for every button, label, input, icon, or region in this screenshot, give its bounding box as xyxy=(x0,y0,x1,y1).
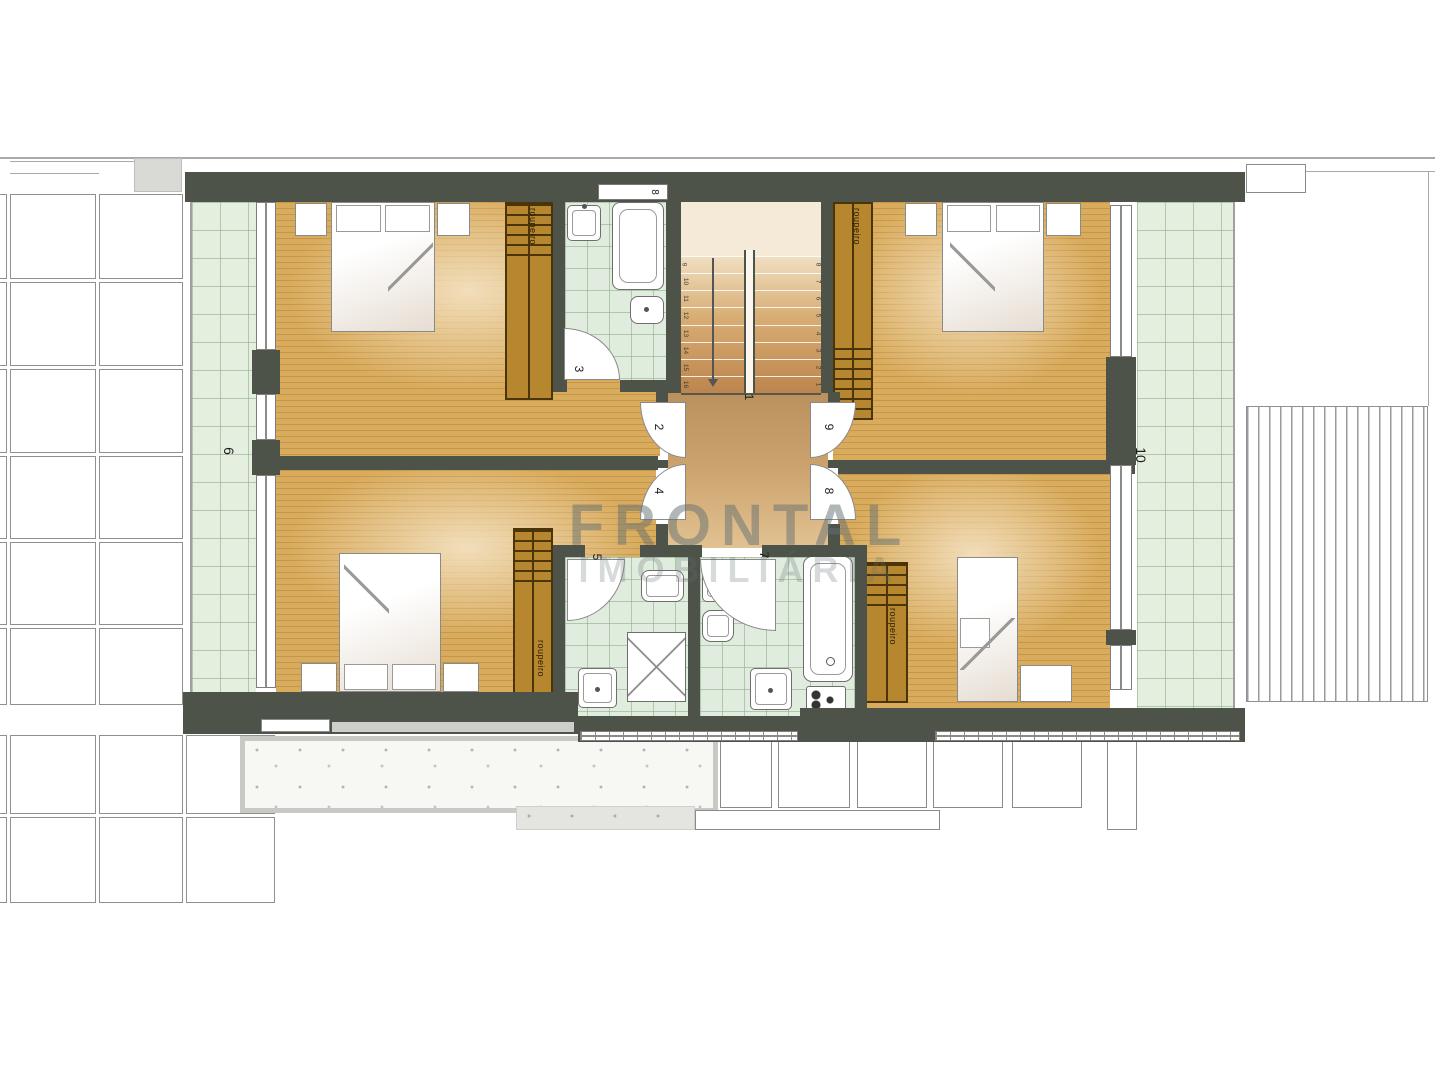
window xyxy=(1110,465,1132,630)
site-boundary-line-top xyxy=(0,157,1435,159)
skylight-panel xyxy=(1012,737,1082,808)
pillow xyxy=(392,664,436,690)
bed-fold xyxy=(344,560,389,618)
terrace-patio xyxy=(240,736,718,813)
stair-step-number: 12 xyxy=(682,312,689,319)
stair-flight-right: 87654321 xyxy=(755,256,821,393)
stair-step-number: 15 xyxy=(682,364,689,371)
pedestal-sink xyxy=(750,668,792,710)
watermark-line2: IMOBILIÁRIA xyxy=(460,549,1020,591)
window xyxy=(1110,645,1132,690)
stair-step-number: 10 xyxy=(682,278,689,285)
terrace-step xyxy=(516,806,695,830)
wall-pier xyxy=(1106,357,1136,465)
pillow xyxy=(385,205,430,232)
toilet xyxy=(630,296,664,324)
nightstand xyxy=(437,203,470,236)
wall-pier xyxy=(252,440,280,475)
stair-step: 5 xyxy=(755,307,821,324)
roof-grid-cell xyxy=(186,817,275,903)
skylight-panel xyxy=(778,737,850,808)
wall-bathroom-top-bottom-a xyxy=(553,380,567,392)
wall-stair-right xyxy=(821,202,833,393)
roof-grid-cell xyxy=(99,194,183,279)
stair-step: 8 xyxy=(755,256,821,273)
nightstand xyxy=(301,663,337,692)
wardrobe-label: roupeiro xyxy=(528,208,538,245)
reference-line-left-a xyxy=(10,161,134,162)
nightstand xyxy=(443,663,479,692)
roof-grid-cell xyxy=(10,282,96,366)
roof-grid-cell xyxy=(0,817,7,903)
pergola-deck xyxy=(1246,406,1428,702)
skylight-panel xyxy=(857,737,927,808)
window xyxy=(256,475,276,688)
stair-step-number: 13 xyxy=(682,329,689,336)
bed-fold xyxy=(950,238,995,296)
stair-landing xyxy=(681,202,821,256)
wall-hall-right-stub xyxy=(828,460,840,468)
window xyxy=(256,202,276,350)
nightstand xyxy=(295,203,327,236)
nightstand xyxy=(905,203,937,236)
sink xyxy=(578,668,617,708)
wall-hall-left-stub xyxy=(656,460,668,468)
stair-step: 6 xyxy=(755,290,821,307)
nightstand xyxy=(1046,203,1081,236)
roof-grid-cell xyxy=(0,735,7,814)
window xyxy=(935,731,1240,741)
balcony-right-number: 10 xyxy=(1134,448,1148,462)
pillow xyxy=(947,205,991,232)
window xyxy=(580,731,798,741)
hall-number: 1 xyxy=(742,390,756,404)
roof-grid-cell xyxy=(0,369,7,453)
door-number: 9 xyxy=(822,420,836,434)
pillow xyxy=(344,664,388,690)
roof-grid-cell xyxy=(0,194,7,279)
roof-grid-cell xyxy=(10,735,96,814)
wall-pier xyxy=(1106,630,1136,645)
roof-grid-cell xyxy=(10,194,96,279)
balcony-right xyxy=(1137,202,1235,710)
sink xyxy=(567,205,601,241)
roof-grid-cell xyxy=(99,456,183,539)
pillar-outline xyxy=(1107,733,1137,830)
stair-step-number: 16 xyxy=(682,381,689,388)
planter-bar xyxy=(695,810,940,830)
balcony-left-number: 6 xyxy=(222,444,236,458)
nightstand xyxy=(1020,665,1072,702)
bed-fold xyxy=(960,618,1015,670)
stair-step-number: 9 xyxy=(680,263,687,267)
roof-grid-cell xyxy=(10,456,96,539)
roof-grid-cell xyxy=(0,282,7,366)
wall-lining xyxy=(332,722,574,732)
neighbor-roof-patch xyxy=(134,158,182,192)
wardrobe-label: roupeiro xyxy=(536,640,546,677)
roof-grid-cell xyxy=(10,542,96,625)
door-number: 2 xyxy=(652,420,666,434)
roof-grid-cell xyxy=(0,542,7,625)
stair-railing xyxy=(744,250,755,393)
window xyxy=(1110,205,1132,357)
wall-middle-left xyxy=(258,456,658,470)
bathtub xyxy=(612,202,664,290)
skylight-panel xyxy=(933,737,1003,808)
stair-step-number: 14 xyxy=(682,347,689,354)
window-number: 8 xyxy=(648,185,662,199)
window xyxy=(261,719,330,732)
roof-grid-cell xyxy=(10,817,96,903)
roof-grid-cell xyxy=(0,628,7,705)
pillow xyxy=(996,205,1040,232)
wall-bathroom-top-bottom-b xyxy=(620,380,681,392)
roof-grid-cell xyxy=(99,735,183,814)
stair-step: 3 xyxy=(755,342,821,359)
roof-grid-cell xyxy=(99,542,183,625)
wall-middle-right xyxy=(838,460,1135,474)
pillow xyxy=(336,205,381,232)
reference-line-right xyxy=(1306,171,1435,172)
floor-plan: 910111213141516 87654321 roupeiro roupei… xyxy=(0,0,1435,1076)
shower xyxy=(627,632,686,702)
reference-line-left-b xyxy=(10,173,99,174)
roof-grid-cell xyxy=(99,282,183,366)
wardrobe-label: roupeiro xyxy=(888,608,898,645)
roof-grid-cell xyxy=(99,817,183,903)
reference-line-right-vertical xyxy=(1428,171,1429,406)
bed-fold xyxy=(388,238,433,296)
roof-grid-cell xyxy=(0,456,7,539)
wardrobe-label: roupeiro xyxy=(852,208,862,245)
wall-pier xyxy=(252,350,280,394)
roof-grid-cell xyxy=(99,369,183,453)
wall-exterior-top xyxy=(185,172,1245,202)
stair-step: 7 xyxy=(755,273,821,290)
stair-step: 4 xyxy=(755,325,821,342)
roof-grid-cell xyxy=(10,369,96,453)
top-right-outline-box xyxy=(1246,164,1306,193)
door-number: 3 xyxy=(572,362,586,376)
wall-stair-left xyxy=(666,202,681,393)
skylight-panel xyxy=(720,737,772,808)
roof-grid-cell xyxy=(10,628,96,705)
stair-direction-arrow-line xyxy=(712,258,714,379)
stair-step: 2 xyxy=(755,359,821,376)
roof-grid-cell xyxy=(99,628,183,705)
stair-direction-arrow-head xyxy=(708,379,718,387)
window xyxy=(256,394,276,440)
stair-step: 1 xyxy=(755,376,821,393)
stair-step-number: 11 xyxy=(682,295,689,302)
